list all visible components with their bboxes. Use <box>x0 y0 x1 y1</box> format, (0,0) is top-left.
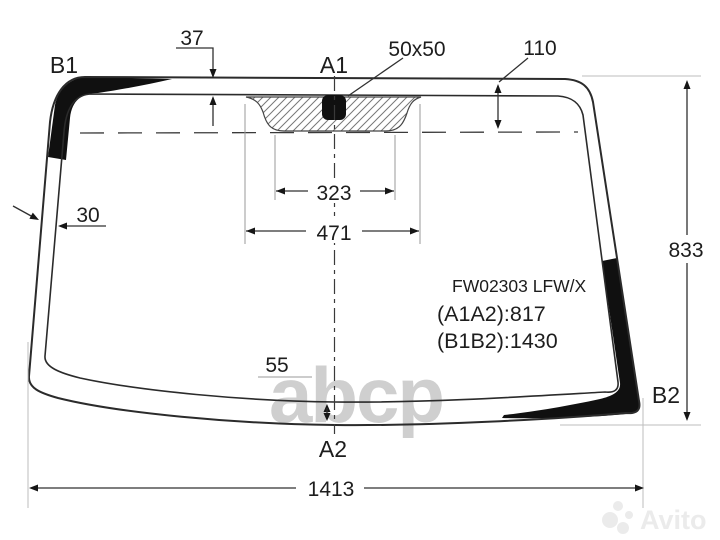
dimension-110 <box>495 58 529 129</box>
windshield-dimension-diagram: abcp Avito <box>0 0 720 540</box>
label-a2: A2 <box>319 436 347 462</box>
dim-text-471: 471 <box>316 222 351 245</box>
label-a1: A1 <box>320 52 348 78</box>
upper-dashed-reference-line <box>80 132 578 133</box>
dim-text-110: 110 <box>523 37 556 60</box>
part-dim-b1b2: (B1B2):1430 <box>437 329 558 353</box>
label-b1: B1 <box>50 52 78 78</box>
dim-text-1413: 1413 <box>308 478 355 501</box>
dimension-37 <box>176 48 217 126</box>
dim-text-323: 323 <box>316 182 351 205</box>
part-code: FW02303 LFW/X <box>452 276 587 296</box>
watermark-avito-text: Avito <box>640 505 707 535</box>
part-dim-a1a2: (A1A2):817 <box>437 302 546 326</box>
dim-text-37: 37 <box>180 27 203 50</box>
leader-50x50 <box>348 58 403 96</box>
watermark-avito-logo: Avito <box>602 501 707 535</box>
dim-text-833: 833 <box>668 239 703 262</box>
dim-text-30: 30 <box>76 204 99 227</box>
dim-text-50x50: 50x50 <box>388 38 445 61</box>
label-b2: B2 <box>652 382 680 408</box>
diagram-canvas: abcp Avito <box>0 0 720 540</box>
dim-text-55: 55 <box>265 354 288 377</box>
